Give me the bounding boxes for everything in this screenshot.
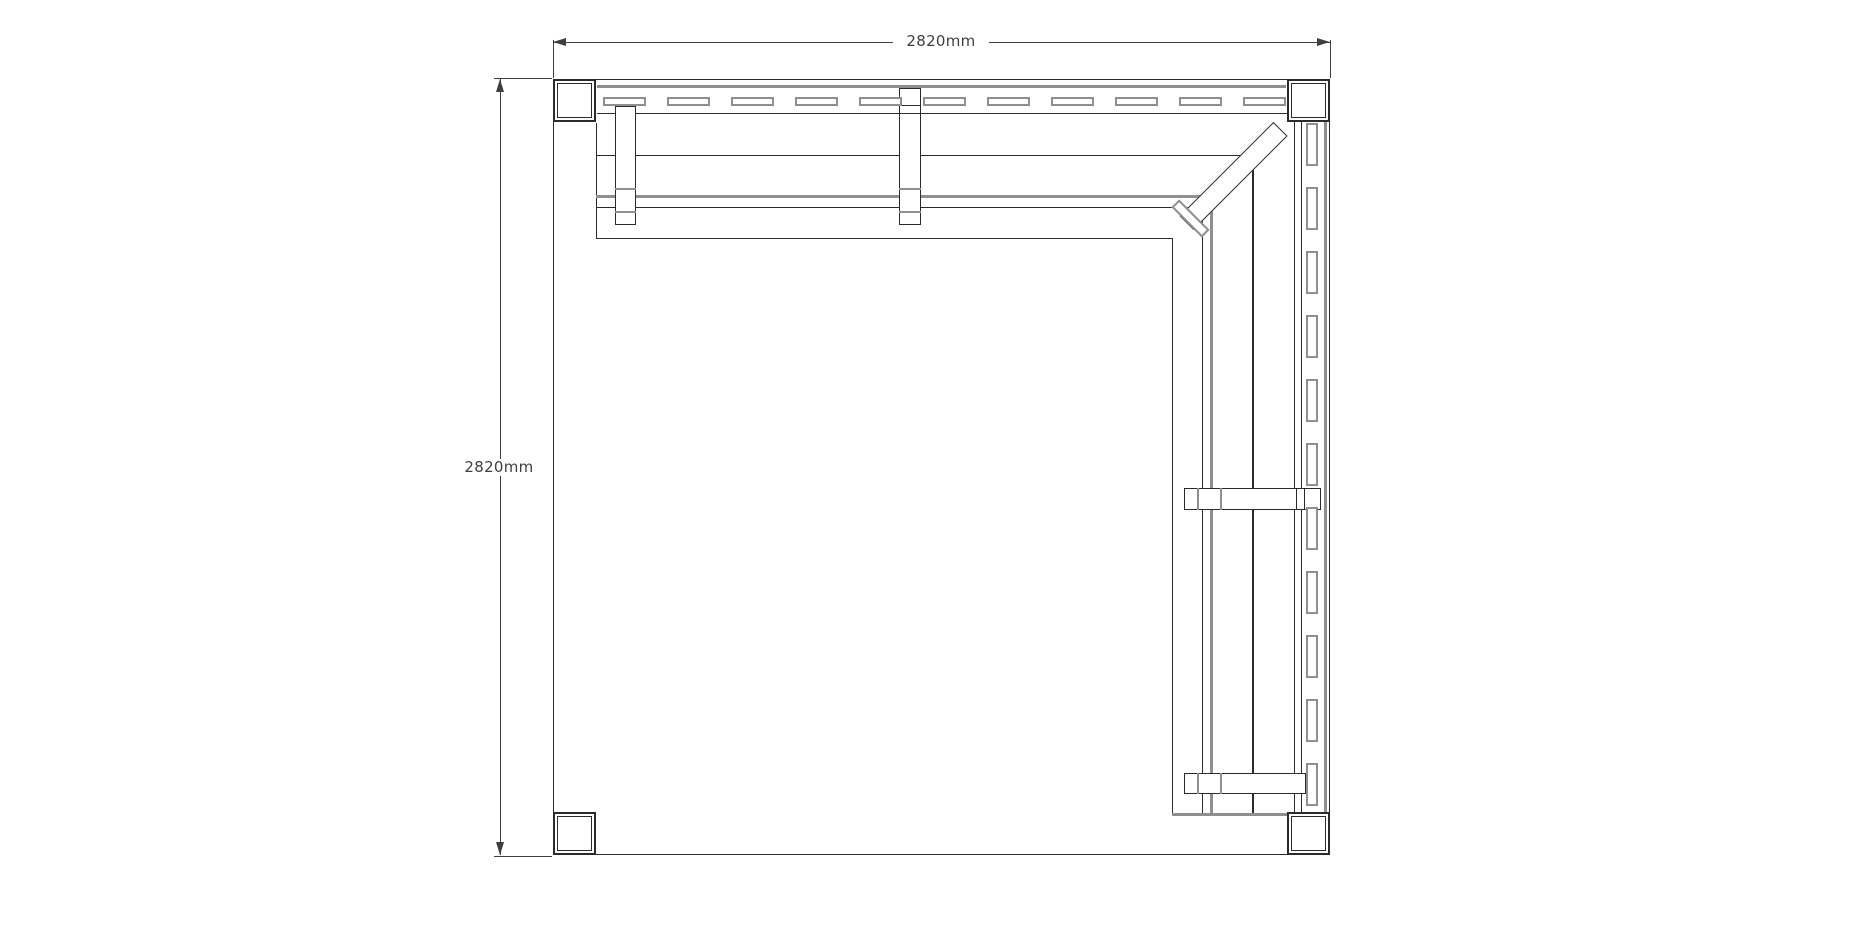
right-seat-front-edge xyxy=(1202,207,1203,813)
top-back-band-line xyxy=(597,113,1288,114)
right-back-slat xyxy=(1306,635,1318,678)
top-bench-leg-1 xyxy=(615,106,636,225)
dimension-arrow-left-icon xyxy=(553,38,566,46)
corner-post-top-left xyxy=(553,79,596,122)
dimension-label-top: 2820mm xyxy=(893,33,989,50)
top-back-slat xyxy=(987,97,1030,106)
corner-post-top-right xyxy=(1287,79,1330,122)
right-back-band-line-a xyxy=(1294,122,1295,813)
top-back-slat xyxy=(1179,97,1222,106)
leg2-band-tick-a xyxy=(899,105,921,106)
dimension-extension-line-top-right xyxy=(1330,40,1331,78)
right-back-slat xyxy=(1306,699,1318,742)
right-bench-leg-2 xyxy=(1184,773,1306,794)
right-back-rail xyxy=(1324,122,1327,814)
top-back-slat xyxy=(795,97,838,106)
leg1-rail-tick-b xyxy=(615,211,636,213)
top-bench-left-end xyxy=(596,123,597,238)
right-back-slat xyxy=(1306,379,1318,422)
right-back-slat xyxy=(1306,571,1318,614)
top-back-slat xyxy=(731,97,774,106)
top-back-slat xyxy=(1243,97,1286,106)
right-leg1-band-tick-b xyxy=(1304,488,1305,510)
corner-post-bottom-left xyxy=(553,812,596,855)
right-back-slat xyxy=(1306,507,1318,550)
corner-post-top-right-inner xyxy=(1291,83,1326,118)
leg1-rail-tick-a xyxy=(615,188,636,190)
leg2-rail-tick-b xyxy=(899,211,921,213)
right-leg1-rail-tick-a xyxy=(1197,488,1199,510)
right-bench-leg-1 xyxy=(1184,488,1321,510)
top-back-slat xyxy=(923,97,966,106)
dimension-arrow-up-icon xyxy=(496,79,504,92)
right-leg2-rail-tick-a xyxy=(1197,773,1199,794)
right-back-slat xyxy=(1306,763,1318,806)
right-back-band-line-b xyxy=(1301,122,1302,813)
right-leg2-rail-tick-b xyxy=(1220,773,1222,794)
top-bench-leg-2 xyxy=(899,88,921,225)
right-back-slat xyxy=(1306,443,1318,486)
drawing-canvas: 2820mm 2820mm xyxy=(0,0,1854,936)
top-back-slat xyxy=(1115,97,1158,106)
right-seat-back-edge xyxy=(1252,155,1254,813)
top-back-slat xyxy=(859,97,902,106)
dimension-arrow-down-icon xyxy=(496,842,504,855)
corner-post-bottom-right-inner xyxy=(1291,816,1326,851)
corner-post-top-left-inner xyxy=(557,83,592,118)
top-back-slat xyxy=(1051,97,1094,106)
top-back-slat xyxy=(667,97,710,106)
top-bench-inner-boundary xyxy=(596,238,1173,239)
right-back-slat xyxy=(1306,123,1318,166)
corner-post-bottom-right xyxy=(1287,812,1330,855)
right-leg1-band-tick-a xyxy=(1296,488,1297,510)
dimension-tick-left-bottom xyxy=(494,856,552,857)
dimension-arrow-right-icon xyxy=(1317,38,1330,46)
dimension-label-left: 2820mm xyxy=(453,459,545,476)
right-back-slat xyxy=(1306,187,1318,230)
right-back-slat xyxy=(1306,315,1318,358)
leg2-rail-tick-a xyxy=(899,188,921,190)
corner-post-bottom-left-inner xyxy=(557,816,592,851)
leg2-band-tick-b xyxy=(899,113,921,114)
right-leg1-rail-tick-b xyxy=(1220,488,1222,510)
top-seat-back-edge xyxy=(596,155,1253,156)
right-back-slat xyxy=(1306,251,1318,294)
right-bench-bottom-end xyxy=(1172,813,1288,816)
top-back-slat xyxy=(603,97,646,106)
right-bench-inner-boundary xyxy=(1172,238,1173,813)
top-back-rail xyxy=(597,85,1286,88)
